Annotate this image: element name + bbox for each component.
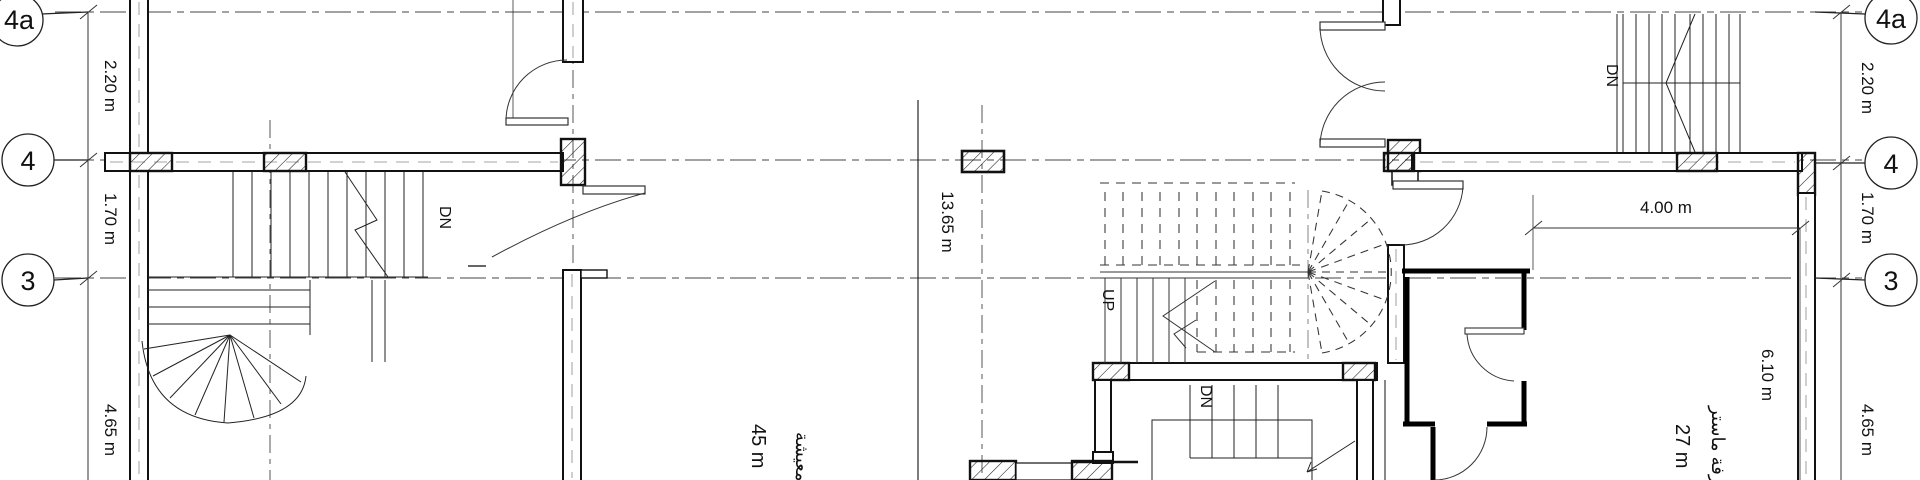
column-hatched	[130, 153, 172, 171]
stair-direction-arrow	[1163, 281, 1215, 352]
grid-bubble-label-4a-left: 4a	[4, 5, 35, 35]
dim-right-4-65: 4.65 m	[1858, 404, 1877, 456]
door-leaf	[583, 186, 645, 194]
center-stair-fan-dashed	[1308, 191, 1391, 353]
room-label-living-name: معيشة	[792, 432, 812, 480]
door-leaf	[1465, 328, 1524, 334]
right-stair-down	[1617, 14, 1740, 152]
center-stair-upper-dashed	[1100, 183, 1300, 352]
dim-room-depth-6-10: 6.10 m	[1758, 349, 1777, 401]
dimension-lines	[80, 5, 1850, 480]
grid-lines	[55, 0, 1862, 480]
floor-plan-drawing: 4a 4 3 4a 4 3 2.20 m 1.70 m 4.65 m 2.20 …	[0, 0, 1920, 480]
center-stair	[1100, 183, 1391, 363]
grid-bubble-label-3-right: 3	[1883, 266, 1898, 296]
dim-left-4-65: 4.65 m	[101, 404, 120, 456]
stair-direction-arrow	[1307, 441, 1355, 472]
stair-label-up-center: UP	[1099, 289, 1116, 311]
stair-label-dn-left: DN	[436, 206, 453, 229]
left-stair-down	[148, 172, 428, 277]
grid-bubbles-right	[1815, 0, 1917, 306]
door-leaf	[1320, 139, 1385, 147]
core-walls	[918, 0, 1420, 480]
column-hatched	[962, 151, 1004, 172]
door-swing-arc	[506, 60, 567, 121]
right-unit-entry-door	[1393, 181, 1463, 245]
column-hatched	[1677, 153, 1717, 171]
column-hatched	[970, 461, 1016, 480]
grid-bubble-label-4a-right: 4a	[1876, 4, 1907, 34]
door-leaf	[1393, 181, 1463, 189]
core-double-door	[1320, 22, 1385, 147]
dim-left-2-20: 2.20 m	[101, 60, 120, 112]
dim-right-1-70: 1.70 m	[1858, 192, 1877, 244]
door-swing-arc	[1320, 26, 1385, 91]
column-hatched	[1384, 153, 1414, 171]
right-unit-walls	[1357, 153, 1815, 480]
column-hatched	[264, 153, 306, 171]
column-hatched	[561, 139, 585, 185]
door-swing-arc	[492, 193, 645, 257]
dim-center-13-65: 13.65 m	[938, 191, 957, 252]
room-label-master-area: 27 m	[1671, 424, 1693, 468]
column-hatched	[1798, 153, 1815, 195]
dim-right-2-20: 2.20 m	[1858, 62, 1877, 114]
door-swing-arc	[1467, 334, 1514, 381]
grid-bubble-label-3-left: 3	[20, 266, 35, 296]
bottom-stair-down	[1152, 385, 1355, 480]
door-leaf	[1320, 22, 1385, 30]
room-label-living-area: 45 m	[747, 424, 769, 468]
stair-label-dn-bottom: DN	[1197, 385, 1214, 408]
center-stair-lower-solid	[1105, 278, 1215, 363]
door-swing-arc	[1434, 427, 1487, 480]
column-hatched	[1072, 461, 1112, 480]
floor-plan-sheet: 4a 4 3 4a 4 3 2.20 m 1.70 m 4.65 m 2.20 …	[0, 0, 1920, 480]
grid-bubbles-left	[0, 0, 88, 306]
left-unit-walls	[105, 0, 607, 480]
door-swing-arc	[1320, 82, 1385, 147]
door-leaf	[506, 118, 568, 125]
dim-left-1-70: 1.70 m	[101, 193, 120, 245]
bathroom-doors	[1434, 328, 1524, 480]
left-winder-stair	[142, 280, 385, 423]
winder-arc	[142, 341, 306, 423]
stair-label-dn-right: DN	[1603, 64, 1620, 87]
door-swing-arc	[1400, 187, 1463, 245]
grid-bubble-label-4-right: 4	[1883, 149, 1898, 179]
dim-room-width-4-00: 4.00 m	[1640, 198, 1692, 217]
grid-bubble-label-4-left: 4	[20, 146, 35, 176]
bathroom-walls	[1402, 271, 1530, 480]
column-hatched	[1343, 363, 1375, 380]
room-label-master-name: غرفة ماستر	[1707, 405, 1728, 480]
column-hatched	[1093, 363, 1129, 380]
